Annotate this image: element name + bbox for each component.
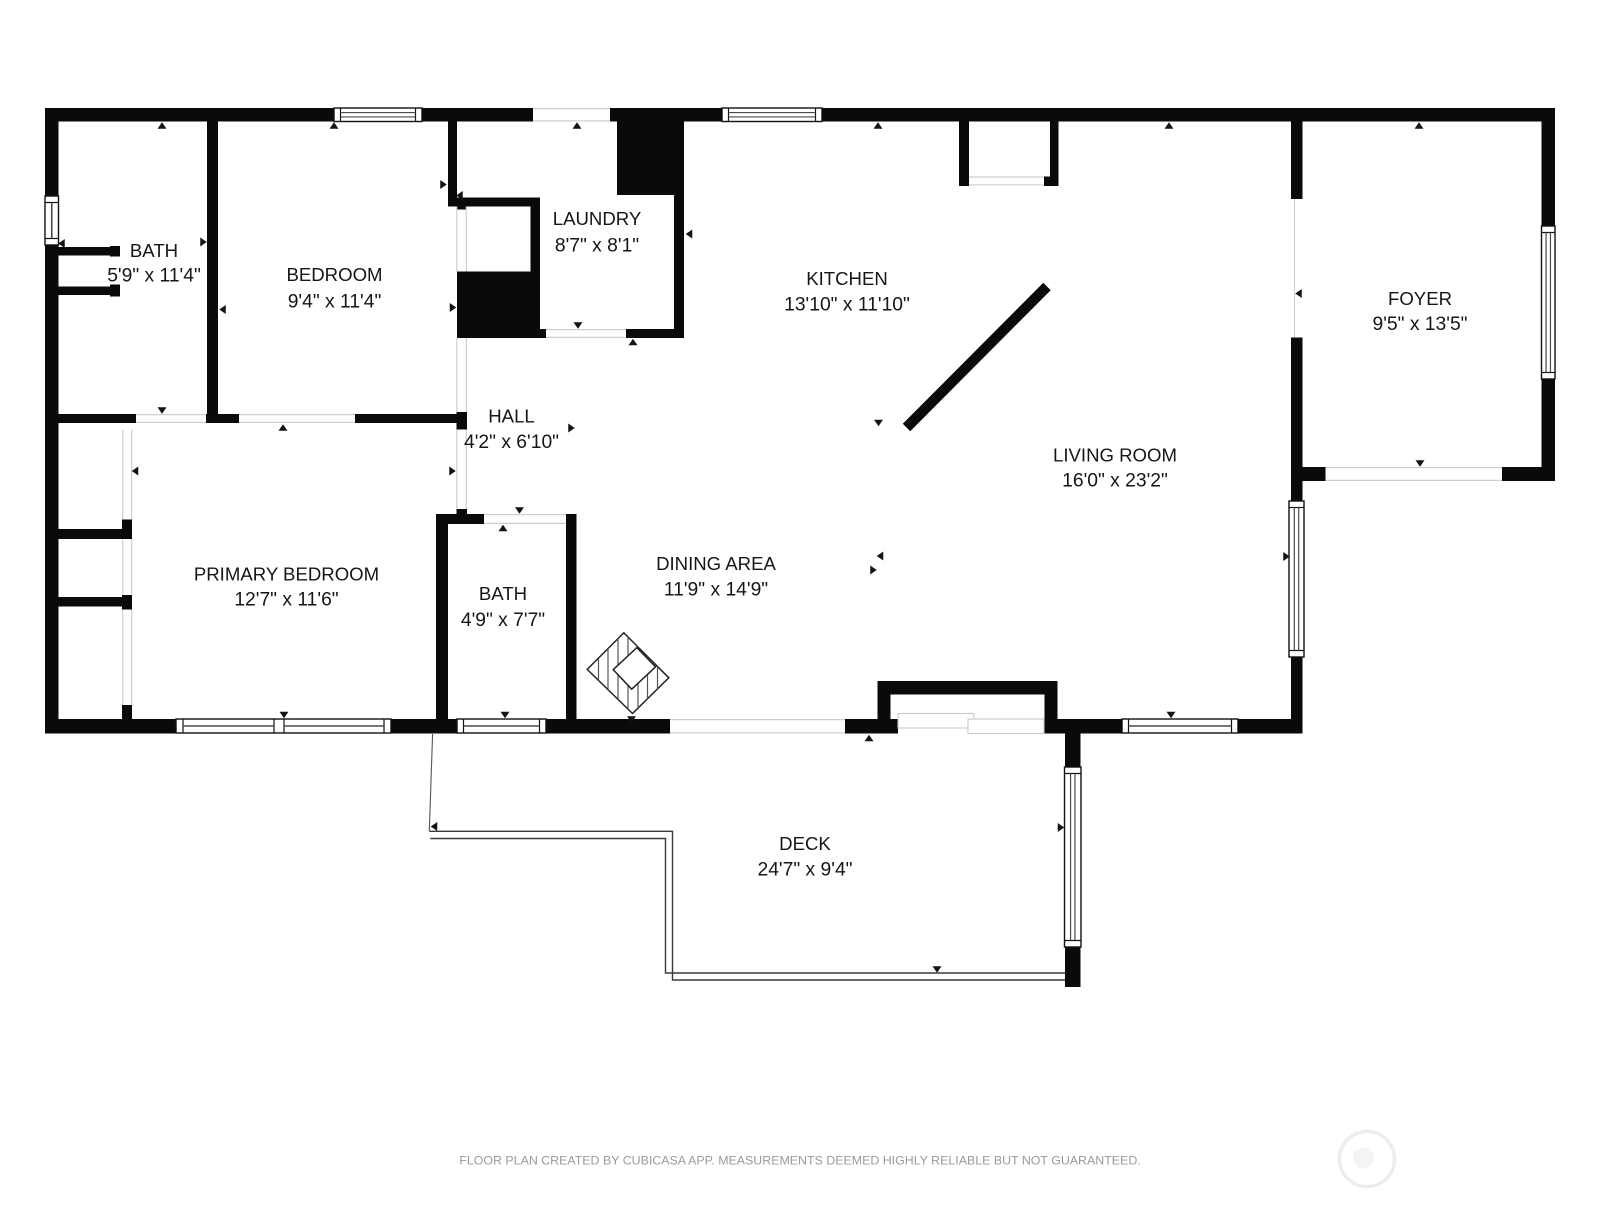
svg-text:BEDROOM: BEDROOM bbox=[286, 264, 382, 285]
svg-text:FLOOR PLAN CREATED BY CUBICASA: FLOOR PLAN CREATED BY CUBICASA APP. MEAS… bbox=[459, 1154, 1140, 1168]
svg-text:PRIMARY BEDROOM: PRIMARY BEDROOM bbox=[194, 564, 379, 585]
svg-text:BATH: BATH bbox=[130, 240, 178, 261]
svg-text:HALL: HALL bbox=[488, 406, 535, 427]
svg-text:16'0" x 23'2": 16'0" x 23'2" bbox=[1062, 471, 1168, 492]
svg-text:4'9" x 7'7": 4'9" x 7'7" bbox=[461, 610, 545, 631]
svg-text:8'7" x 8'1": 8'7" x 8'1" bbox=[555, 236, 639, 257]
svg-text:KITCHEN: KITCHEN bbox=[806, 268, 888, 289]
svg-text:BATH: BATH bbox=[479, 583, 527, 604]
svg-text:11'9" x 14'9": 11'9" x 14'9" bbox=[664, 580, 768, 601]
svg-text:13'10" x 11'10": 13'10" x 11'10" bbox=[784, 295, 910, 316]
svg-text:24'7" x 9'4": 24'7" x 9'4" bbox=[757, 860, 852, 881]
svg-text:DINING AREA: DINING AREA bbox=[656, 553, 776, 574]
svg-text:4'2" x 6'10": 4'2" x 6'10" bbox=[464, 432, 559, 453]
svg-text:LAUNDRY: LAUNDRY bbox=[553, 208, 642, 229]
svg-text:LIVING ROOM: LIVING ROOM bbox=[1053, 445, 1177, 466]
svg-text:12'7" x 11'6": 12'7" x 11'6" bbox=[234, 590, 338, 611]
svg-text:9'4" x 11'4": 9'4" x 11'4" bbox=[288, 292, 382, 313]
svg-text:5'9" x 11'4": 5'9" x 11'4" bbox=[107, 266, 201, 287]
svg-text:DECK: DECK bbox=[779, 833, 831, 854]
svg-text:9'5" x 13'5": 9'5" x 13'5" bbox=[1372, 314, 1467, 335]
svg-text:FOYER: FOYER bbox=[1388, 288, 1452, 309]
